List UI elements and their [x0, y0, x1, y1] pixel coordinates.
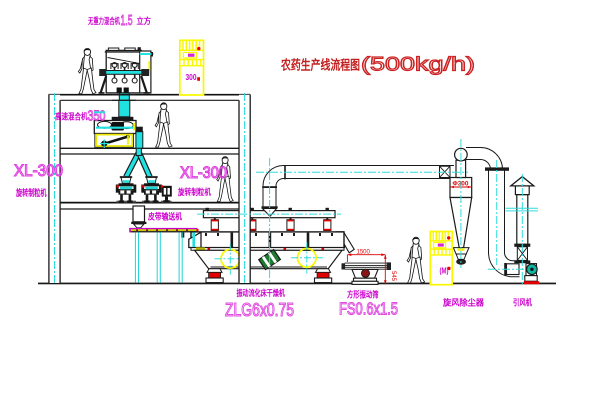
svg-text:旋转制粒机: 旋转制粒机 — [15, 187, 46, 198]
svg-text:立方: 立方 — [137, 16, 152, 26]
svg-text:XL-300: XL-300 — [14, 162, 63, 180]
svg-text:旋风除尘器: 旋风除尘器 — [442, 297, 484, 308]
svg-text:农药生产线流程图: 农药生产线流程图 — [280, 58, 360, 73]
svg-text:无重力混合机: 无重力混合机 — [87, 16, 120, 26]
svg-text:皮带输送机: 皮带输送机 — [147, 211, 182, 222]
svg-text:高速混合机: 高速混合机 — [55, 112, 88, 122]
svg-text:引风机: 引风机 — [513, 297, 532, 308]
svg-text:545: 545 — [390, 271, 396, 282]
svg-text:旋转制粒机: 旋转制粒机 — [177, 186, 211, 197]
svg-text:(500kg/h): (500kg/h) — [361, 54, 475, 76]
svg-text:XL-300: XL-300 — [180, 164, 227, 182]
svg-text:1500: 1500 — [357, 250, 371, 256]
svg-text:350: 350 — [88, 109, 106, 125]
svg-text:FS0.6x1.5: FS0.6x1.5 — [339, 299, 398, 319]
svg-text:1.5: 1.5 — [121, 13, 133, 29]
svg-text:(M): (M) — [440, 266, 449, 275]
svg-text:振动流化床干燥机: 振动流化床干燥机 — [237, 287, 286, 298]
svg-text:ZLG6x0.75: ZLG6x0.75 — [225, 300, 294, 320]
svg-text:300: 300 — [186, 72, 197, 82]
